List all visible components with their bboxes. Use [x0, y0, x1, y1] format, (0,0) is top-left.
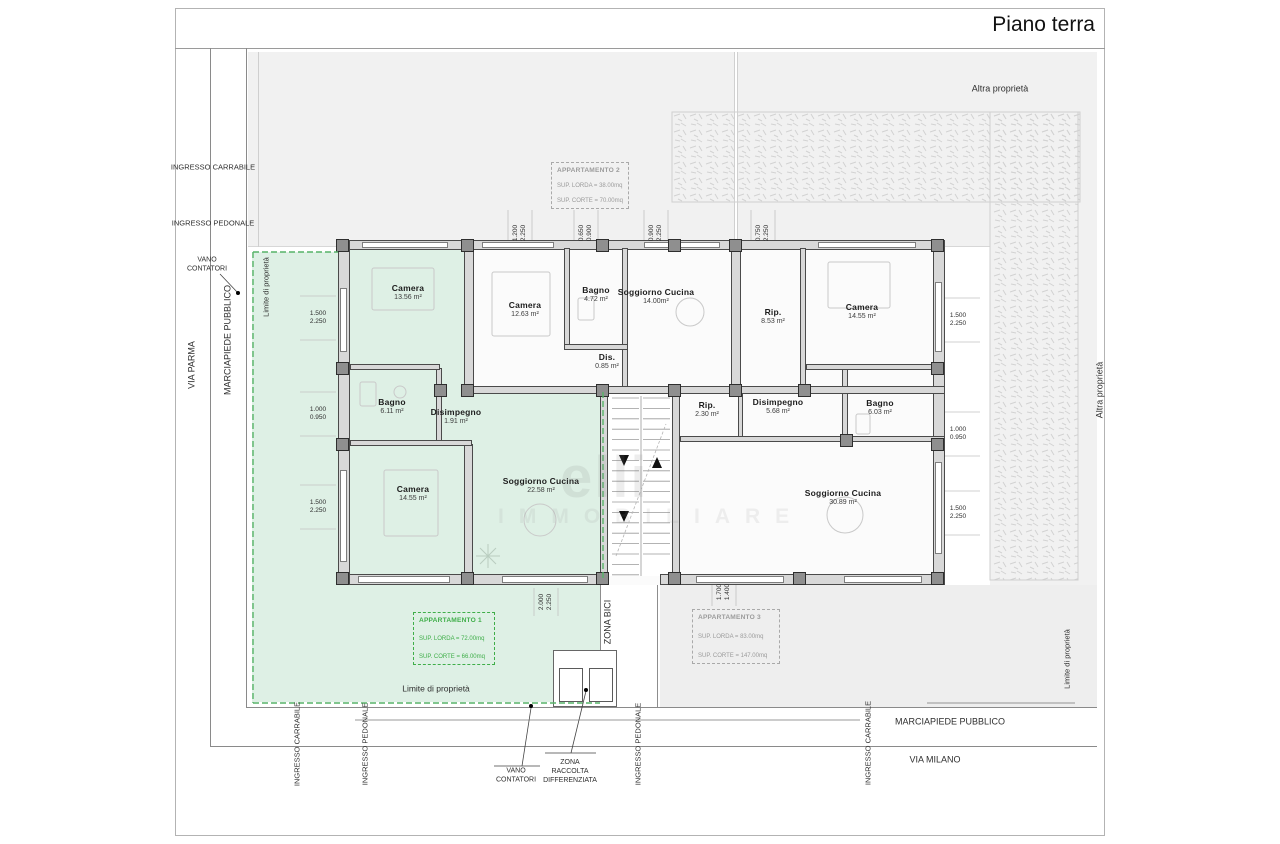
room-area: 12.63 m²	[509, 311, 541, 318]
room-name: Disimpegno	[431, 407, 482, 417]
label-vano-contatori-bottom: VANO CONTATORI	[496, 767, 536, 785]
apartment-1-corte: SUP. CORTE = 66.00mq	[419, 654, 489, 660]
room-label-camera-3: Camera14.55 m²	[846, 302, 878, 320]
dimension-value: 0.900	[587, 225, 594, 241]
room-area: 13.56 m²	[392, 294, 424, 301]
room-label-camera-1: Camera13.56 m²	[392, 283, 424, 301]
window-opening	[696, 576, 784, 583]
pillar	[596, 572, 609, 585]
label-altra-proprieta-top: Altra proprietà	[972, 83, 1029, 94]
pillar	[931, 572, 944, 585]
label-marciapiede-left: MARCIAPIEDE PUBBLICO	[222, 285, 233, 395]
room-label-bagno-1: Bagno6.11 m²	[378, 397, 405, 415]
apartment-3-lorda: SUP. LORDA = 83.00mq	[698, 634, 774, 640]
room-label-rip-3a: Rip.8.53 m²	[761, 307, 785, 325]
room-name: Bagno	[378, 397, 405, 407]
room-name: Bagno	[866, 398, 893, 408]
label-via-parma: VIA PARMA	[186, 341, 197, 389]
wall	[464, 386, 608, 394]
window-opening	[818, 242, 916, 248]
region-driveway-divider	[734, 52, 738, 242]
label-vano-contatori-left: VANO CONTATORI	[187, 256, 227, 274]
window-opening	[362, 242, 448, 248]
apartment-1-lorda: SUP. LORDA = 72.00mq	[419, 636, 489, 642]
annotation-apartment-2: APPARTAMENTO 2 SUP. LORDA = 38.00mq SUP.…	[551, 162, 629, 209]
room-label-bagno-3: Bagno6.03 m²	[866, 398, 893, 416]
room-name: Soggiorno Cucina	[618, 287, 694, 297]
meter-cabinet-door-2	[589, 668, 613, 702]
dimension-label: 1.5002.250	[310, 500, 326, 514]
wall	[564, 344, 628, 350]
dimension-value: 2.250	[657, 225, 664, 241]
window-opening	[358, 576, 450, 583]
dimension-value: 0.750	[756, 225, 763, 241]
dimension-label: 1.2002.250	[513, 225, 527, 241]
pillar	[729, 384, 742, 397]
window-opening	[482, 242, 554, 248]
pillar	[461, 572, 474, 585]
dimension-label: 2.0002.250	[539, 594, 553, 610]
pillar	[336, 362, 349, 375]
dimension-label: 0.7502.250	[756, 225, 770, 241]
room-name: Camera	[392, 283, 424, 293]
room-area: 6.11 m²	[378, 408, 405, 415]
dimension-value: 1.700	[717, 584, 724, 600]
room-name: Bagno	[582, 285, 609, 295]
dimension-value: 2.250	[764, 225, 771, 241]
room-name: Soggiorno Cucina	[805, 488, 881, 498]
wall	[436, 368, 442, 444]
label-limite-left: Limite di proprietà	[261, 257, 270, 317]
label-ingresso-pedonale-b2: INGRESSO PEDONALE	[633, 703, 642, 786]
room-area: 14.00m²	[618, 298, 694, 305]
label-ingresso-carrabile-left: INGRESSO CARRABILE	[171, 162, 255, 171]
window-opening	[935, 462, 942, 554]
title-divider	[175, 48, 1105, 49]
room-name: Rip.	[695, 400, 719, 410]
dimension-value: 2.250	[950, 514, 966, 521]
room-label-camera-1b: Camera14.55 m²	[397, 484, 429, 502]
region-driveway-divider-left	[258, 52, 259, 247]
room-name: Camera	[509, 300, 541, 310]
room-area: 2.30 m²	[695, 411, 719, 418]
meter-cabinet-door-1	[559, 668, 583, 702]
dimension-value: 2.250	[547, 594, 554, 610]
window-opening	[340, 470, 347, 562]
dimension-value: 1.500	[310, 311, 326, 318]
apartment-1-name: APPARTAMENTO 1	[419, 617, 489, 624]
pillar	[668, 572, 681, 585]
room-area: 14.55 m²	[397, 495, 429, 502]
label-limite-right: Limite di proprietà	[1062, 629, 1071, 689]
pillar	[798, 384, 811, 397]
street-line-bottom	[210, 746, 1097, 747]
room-area: 8.53 m²	[761, 318, 785, 325]
dimension-value: 2.250	[521, 225, 528, 241]
dimension-label: 1.5002.250	[310, 311, 326, 325]
wall	[842, 368, 848, 440]
wall	[672, 388, 680, 574]
dimension-label: 1.5002.250	[950, 313, 966, 327]
window-opening	[340, 288, 347, 352]
label-altra-proprieta-right: Altra proprietà	[1094, 362, 1105, 419]
pillar	[931, 438, 944, 451]
room-label-camera-2: Camera12.63 m²	[509, 300, 541, 318]
pillar	[336, 239, 349, 252]
room-area: 6.03 m²	[866, 409, 893, 416]
window-opening	[935, 282, 942, 352]
wall	[608, 386, 945, 394]
dimension-value: 1.400	[725, 584, 732, 600]
label-ingresso-carrabile-b1: INGRESSO CARRABILE	[292, 702, 301, 786]
dimension-value: 1.200	[513, 225, 520, 241]
dimension-value: 2.250	[310, 508, 326, 515]
dimension-label: 0.6500.900	[579, 225, 593, 241]
room-area: 5.68 m²	[753, 408, 804, 415]
pillar	[434, 384, 447, 397]
dimension-label: 1.0000.950	[950, 427, 966, 441]
dimension-value: 2.000	[539, 594, 546, 610]
property-line-left	[246, 48, 247, 707]
label-ingresso-pedonale-b1: INGRESSO PEDONALE	[360, 703, 369, 786]
pillar	[931, 362, 944, 375]
room-label-disimpegno-1: Disimpegno1.91 m²	[431, 407, 482, 425]
room-label-bagno-2: Bagno4.72 m²	[582, 285, 609, 303]
label-zona-bici: ZONA BICI	[602, 600, 613, 645]
dimension-label: 0.9002.250	[649, 225, 663, 241]
annotation-apartment-3: APPARTAMENTO 3 SUP. LORDA = 83.00mq SUP.…	[692, 609, 780, 664]
dimension-label: 1.7001.400	[717, 584, 731, 600]
dimension-label: 1.0000.950	[310, 407, 326, 421]
room-name: Camera	[397, 484, 429, 494]
label-limite-bottom: Limite di proprietà	[402, 684, 470, 695]
pillar	[668, 384, 681, 397]
pillar	[336, 572, 349, 585]
pillar	[461, 384, 474, 397]
apartment-2-corte: SUP. CORTE = 70.00mq	[557, 198, 623, 204]
floor-plan-page: Piano terra	[0, 0, 1280, 844]
dimension-value: 2.250	[950, 321, 966, 328]
room-area: 30.89 m²	[805, 499, 881, 506]
dimension-value: 1.500	[950, 313, 966, 320]
wall	[738, 392, 743, 440]
room-name: Disimpegno	[753, 397, 804, 407]
apartment-3-name: APPARTAMENTO 3	[698, 614, 774, 621]
dimension-value: 0.950	[310, 415, 326, 422]
label-via-milano: VIA MILANO	[909, 754, 960, 765]
dimension-value: 0.650	[579, 225, 586, 241]
room-area: 14.55 m²	[846, 313, 878, 320]
dimension-label: 1.5002.250	[950, 506, 966, 520]
street-line-left-outer	[210, 48, 211, 746]
pillar	[729, 239, 742, 252]
label-zona-raccolta: ZONA RACCOLTA DIFFERENZIATA	[543, 759, 597, 785]
room-label-disimpegno-3: Disimpegno5.68 m²	[753, 397, 804, 415]
region-altra-proprieta-top	[248, 52, 1097, 247]
label-marciapiede-bottom: MARCIAPIEDE PUBBLICO	[895, 716, 1005, 727]
wall	[731, 240, 741, 394]
pillar	[840, 434, 853, 447]
wall	[680, 436, 945, 442]
room-label-dis-2: Dis.0.85 m²	[595, 352, 619, 370]
property-line-bottom	[246, 707, 1097, 708]
apartment-2-name: APPARTAMENTO 2	[557, 167, 623, 174]
room-area: 0.85 m²	[595, 363, 619, 370]
pillar	[596, 239, 609, 252]
wall	[564, 248, 570, 350]
page-title: Piano terra	[790, 13, 1095, 37]
room-label-soggiorno-3: Soggiorno Cucina30.89 m²	[805, 488, 881, 506]
dimension-value: 0.900	[649, 225, 656, 241]
pillar	[596, 384, 609, 397]
room-label-soggiorno-2: Soggiorno Cucina14.00m²	[618, 287, 694, 305]
annotation-apartment-1: APPARTAMENTO 1 SUP. LORDA = 72.00mq SUP.…	[413, 612, 495, 665]
pillar	[336, 438, 349, 451]
pillar	[668, 239, 681, 252]
pillar	[461, 239, 474, 252]
wall	[464, 240, 474, 394]
room-area: 1.91 m²	[431, 418, 482, 425]
dimension-value: 1.000	[310, 407, 326, 414]
room-name: Camera	[846, 302, 878, 312]
wall	[464, 444, 473, 574]
wall	[806, 364, 936, 370]
dimension-value: 1.000	[950, 427, 966, 434]
room-label-rip-3b: Rip.2.30 m²	[695, 400, 719, 418]
watermark-text: elli	[560, 444, 649, 511]
window-opening	[844, 576, 922, 583]
wall	[350, 440, 472, 446]
label-ingresso-carrabile-b2: INGRESSO CARRABILE	[863, 701, 872, 785]
dimension-value: 1.500	[950, 506, 966, 513]
pillar	[793, 572, 806, 585]
window-opening	[502, 576, 588, 583]
pillar	[931, 239, 944, 252]
wall	[622, 248, 628, 394]
wall	[800, 248, 806, 394]
dimension-value: 0.950	[950, 435, 966, 442]
apartment-3-corte: SUP. CORTE = 147.00mq	[698, 653, 774, 659]
window-opening	[644, 242, 720, 248]
dimension-value: 2.250	[310, 319, 326, 326]
label-ingresso-pedonale-left: INGRESSO PEDONALE	[172, 218, 255, 227]
dimension-value: 1.500	[310, 500, 326, 507]
watermark-subtext: IMMOBILIARE	[498, 505, 804, 529]
apartment-2-lorda: SUP. LORDA = 38.00mq	[557, 183, 623, 189]
room-area: 4.72 m²	[582, 296, 609, 303]
room-name: Dis.	[595, 352, 619, 362]
wall	[350, 364, 440, 370]
room-name: Rip.	[761, 307, 785, 317]
